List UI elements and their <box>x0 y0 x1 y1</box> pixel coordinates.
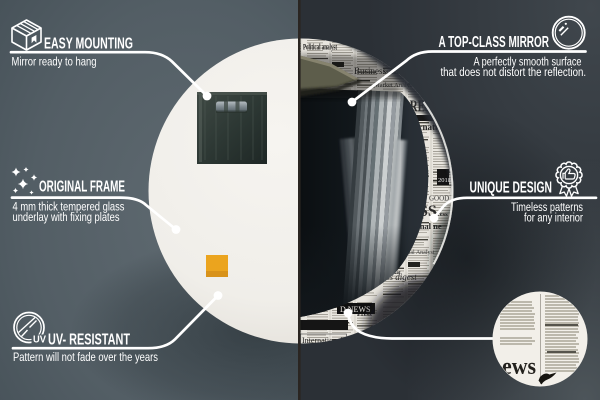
svg-text:UNIQUE DESIGN: UNIQUE DESIGN <box>470 180 553 197</box>
svg-text:A TOP-CLASS MIRROR: A TOP-CLASS MIRROR <box>439 34 550 51</box>
svg-text:UV: UV <box>33 334 46 346</box>
svg-text:UV- RESISTANT: UV- RESISTANT <box>48 332 130 349</box>
svg-text:EASY MOUNTING: EASY MOUNTING <box>44 36 133 53</box>
svg-text:2018: 2018 <box>438 177 451 184</box>
svg-text:that does not distort the refl: that does not distort the reflection. <box>441 65 587 79</box>
svg-text:ORIGINAL FRAME: ORIGINAL FRAME <box>39 179 125 196</box>
svg-text:Pattern will not fade over the: Pattern will not fade over the years <box>13 350 158 364</box>
svg-text:for any interior: for any interior <box>524 211 583 225</box>
svg-text:Political analyst: Political analyst <box>303 43 337 52</box>
svg-text:Mirror ready to hang: Mirror ready to hang <box>12 55 97 69</box>
svg-text:GOOD: GOOD <box>429 195 449 203</box>
svg-text:underlay with fixing plates: underlay with fixing plates <box>13 210 120 224</box>
